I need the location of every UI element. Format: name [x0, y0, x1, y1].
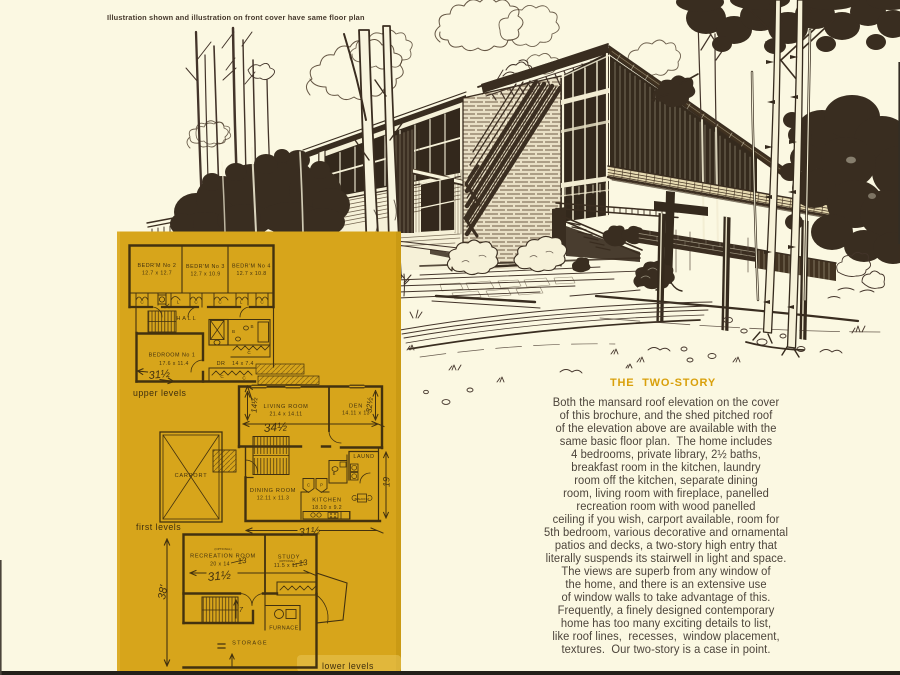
- svg-text:DEN: DEN: [349, 404, 363, 410]
- svg-text:DR: DR: [217, 361, 226, 367]
- svg-text:STORAGE: STORAGE: [232, 641, 268, 647]
- svg-text:upper levels: upper levels: [133, 388, 187, 398]
- svg-text:14 x 7.4: 14 x 7.4: [232, 361, 254, 367]
- svg-text:LAUND: LAUND: [353, 454, 374, 460]
- svg-text:34½: 34½: [263, 419, 287, 435]
- svg-text:B: B: [250, 324, 253, 329]
- svg-text:P: P: [320, 483, 323, 488]
- svg-text:C: C: [307, 483, 310, 488]
- svg-text:(OPTIONAL): (OPTIONAL): [214, 547, 231, 551]
- svg-text:B: B: [333, 471, 336, 476]
- svg-text:32½: 32½: [365, 397, 375, 414]
- svg-text:FURNACE: FURNACE: [269, 626, 299, 632]
- svg-text:B: B: [232, 329, 235, 334]
- svg-text:17.6 x 11.4: 17.6 x 11.4: [159, 361, 189, 367]
- svg-text:18.10 x 9.2: 18.10 x 9.2: [312, 505, 342, 511]
- svg-text:lower levels: lower levels: [322, 661, 374, 671]
- svg-text:LIVING ROOM: LIVING ROOM: [264, 404, 309, 410]
- svg-text:12.7 x 12.7: 12.7 x 12.7: [142, 271, 172, 277]
- svg-text:HALL: HALL: [176, 316, 197, 322]
- svg-text:CARPORT: CARPORT: [175, 473, 208, 479]
- svg-text:31½: 31½: [148, 368, 171, 382]
- svg-text:21.4 x 14.11: 21.4 x 14.11: [270, 412, 303, 418]
- svg-text:19: 19: [382, 477, 392, 487]
- svg-text:20 x 14: 20 x 14: [210, 562, 230, 568]
- svg-text:first levels: first levels: [136, 522, 181, 532]
- svg-text:31½: 31½: [298, 525, 320, 539]
- svg-text:31½: 31½: [207, 568, 232, 584]
- svg-text:L: L: [240, 300, 243, 305]
- svg-text:12.7 x 10.9: 12.7 x 10.9: [190, 272, 220, 278]
- svg-text:L: L: [177, 300, 180, 305]
- svg-text:BEDROOM No 1: BEDROOM No 1: [149, 353, 196, 359]
- svg-text:DINING ROOM: DINING ROOM: [250, 488, 296, 494]
- svg-text:BEDR'M No 2: BEDR'M No 2: [138, 263, 177, 269]
- svg-text:14½: 14½: [250, 397, 260, 413]
- svg-text:11.5 x 11: 11.5 x 11: [274, 563, 298, 569]
- svg-text:12.7 x 10.8: 12.7 x 10.8: [236, 271, 266, 277]
- svg-text:KITCHEN: KITCHEN: [312, 498, 341, 504]
- svg-text:BEDR'M No 3: BEDR'M No 3: [186, 264, 225, 270]
- svg-text:12.11 x 11.3: 12.11 x 11.3: [257, 496, 290, 502]
- svg-text:BEDR'M No 4: BEDR'M No 4: [232, 264, 271, 270]
- svg-text:BREAKFST: BREAKFST: [355, 497, 370, 501]
